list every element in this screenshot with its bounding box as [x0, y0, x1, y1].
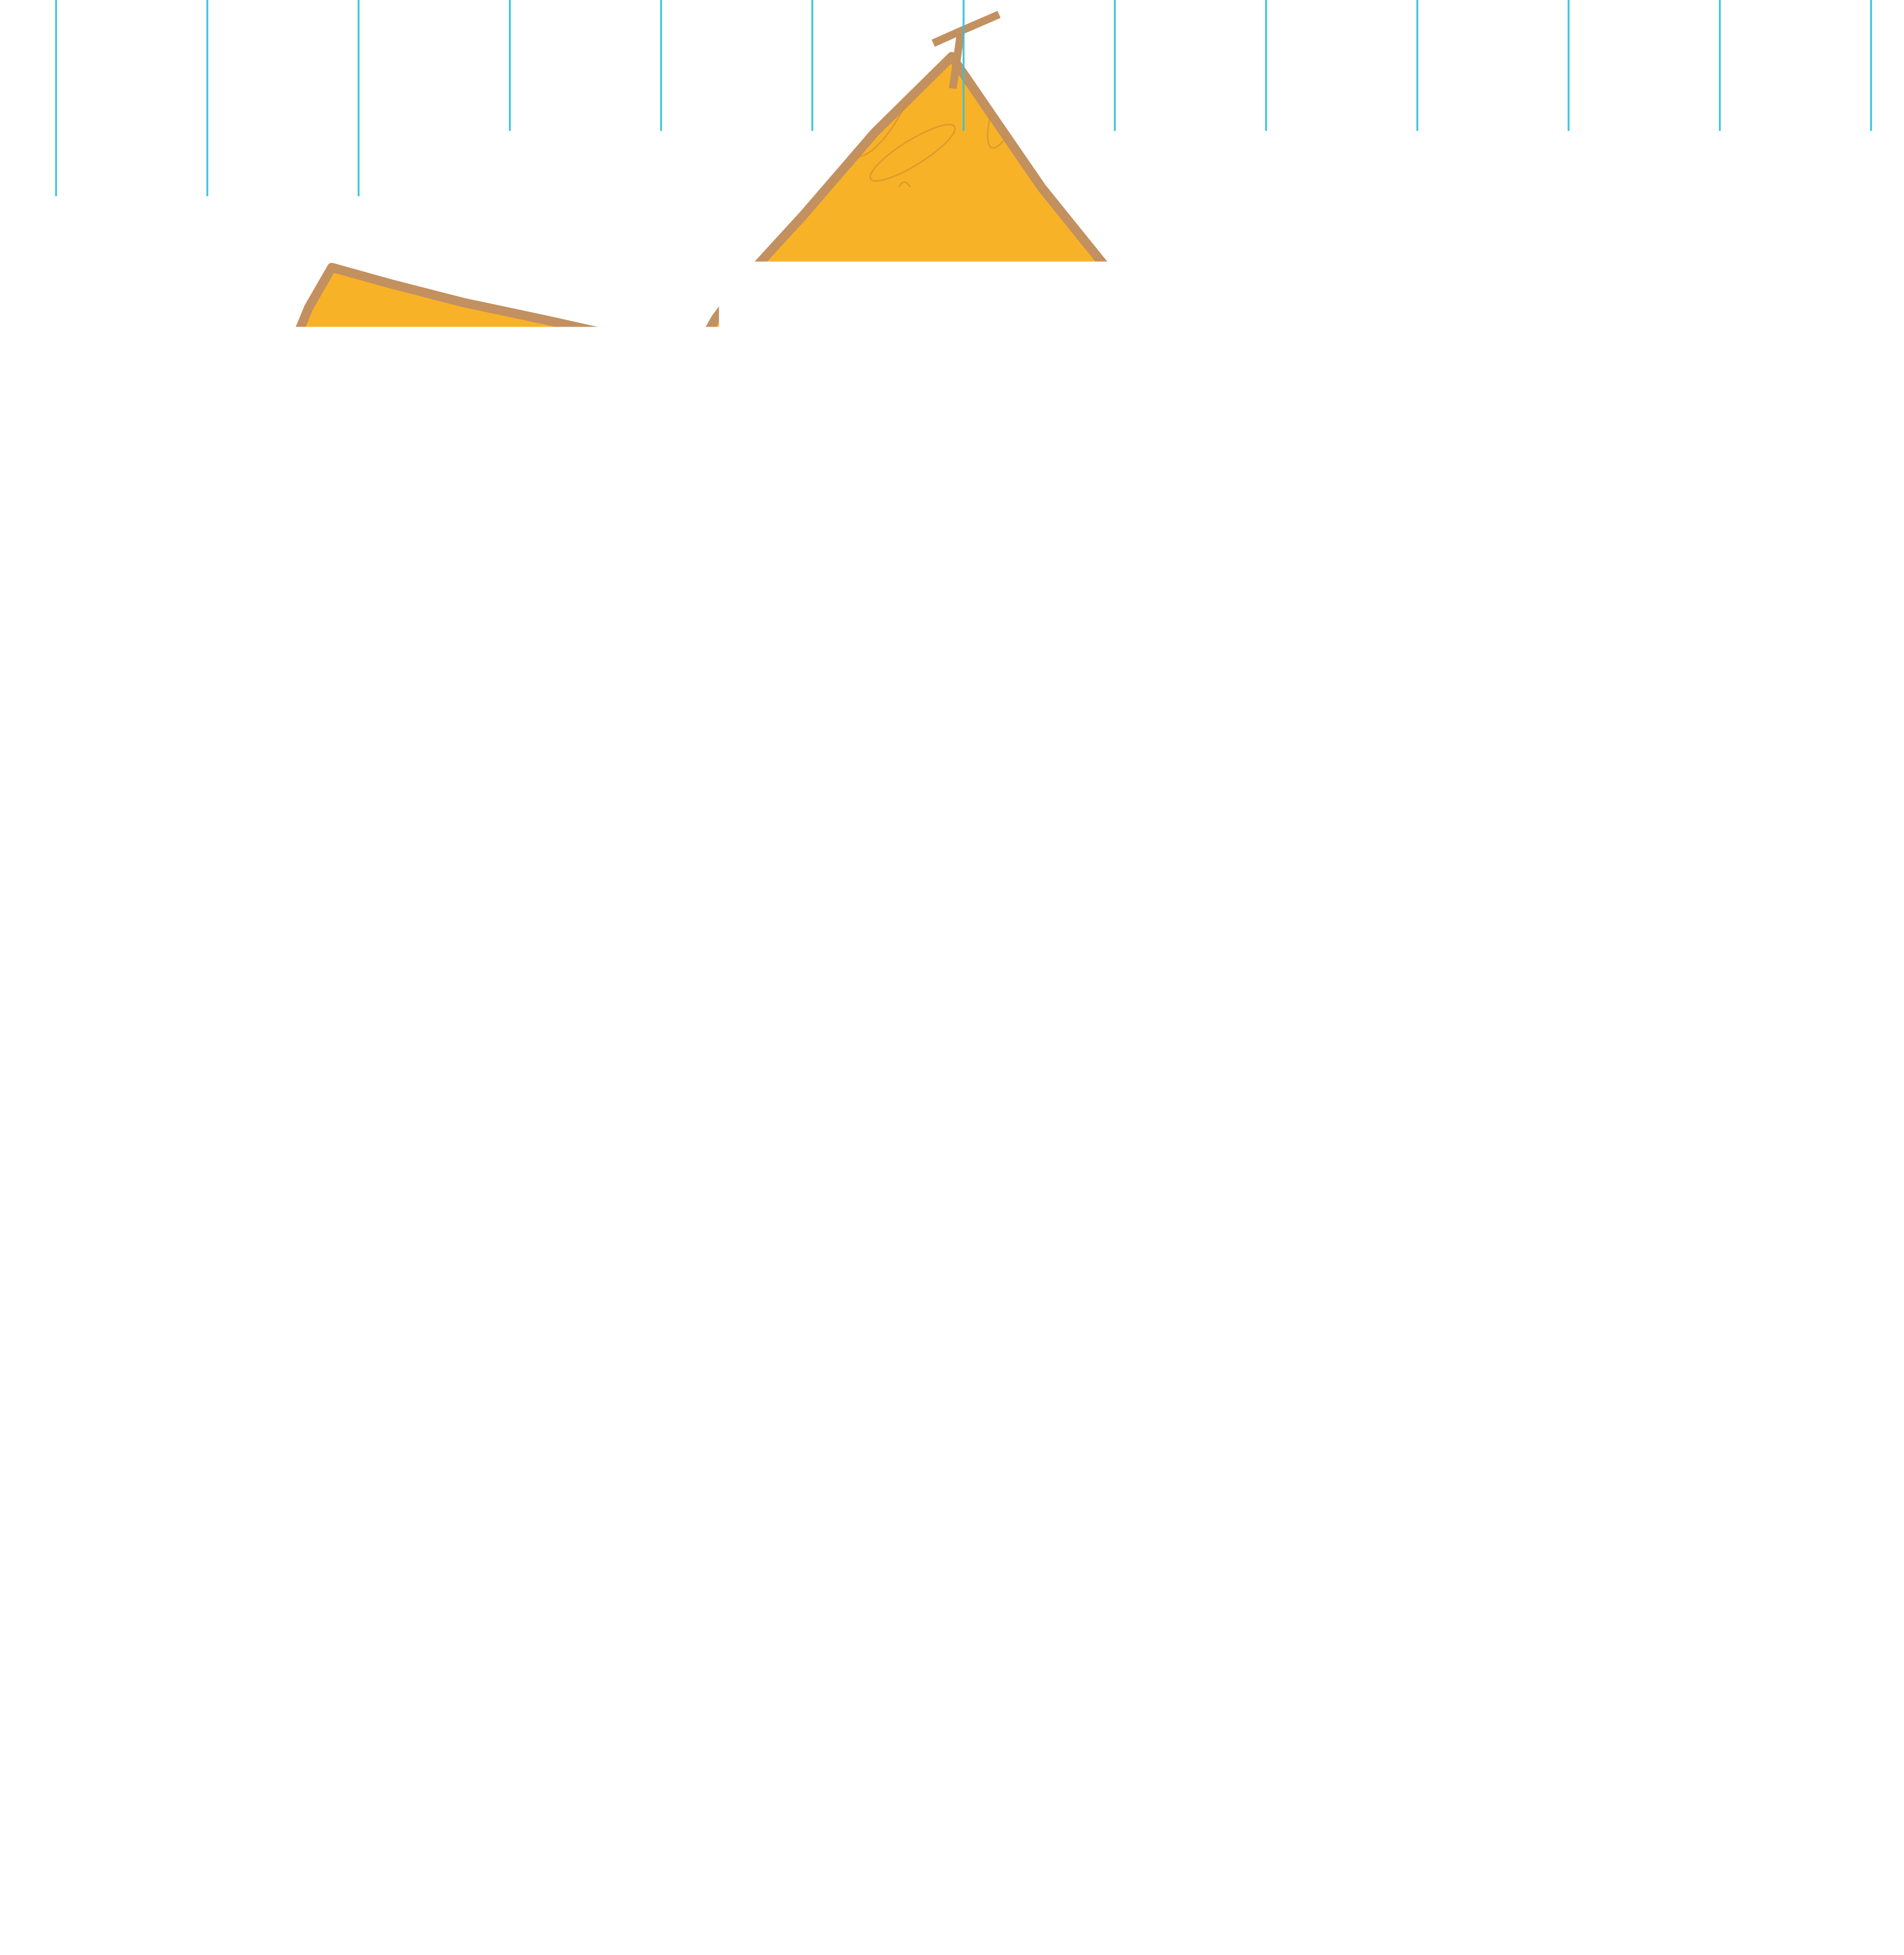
svg-text:N: N [1512, 1619, 1529, 1644]
svg-text:impianto: impianto [1580, 1761, 1604, 1768]
svg-text:F.I.S.O.: F.I.S.O. [1577, 1748, 1610, 1759]
svg-text:Omologatore: Adriano Bettega: Omologatore: Adriano Bettega [1575, 1845, 1672, 1853]
svg-text:CS: CS [1583, 1772, 1599, 1785]
svg-text:25/08/2020: 25/08/2020 [1573, 1809, 1607, 1817]
svg-text:0790: 0790 [1577, 1788, 1603, 1801]
svg-text:produzione 2011: produzione 2011 [1360, 1814, 1512, 1843]
svg-text:PALMANOVA: PALMANOVA [1360, 1697, 1644, 1749]
svg-text:scala 1 : 4.000: scala 1 : 4.000 [1360, 1752, 1493, 1782]
svg-text:equidistanza 2 m: equidistanza 2 m [1360, 1783, 1519, 1813]
svg-text:aggiornamento 2020: aggiornamento 2020 [1360, 1844, 1551, 1874]
